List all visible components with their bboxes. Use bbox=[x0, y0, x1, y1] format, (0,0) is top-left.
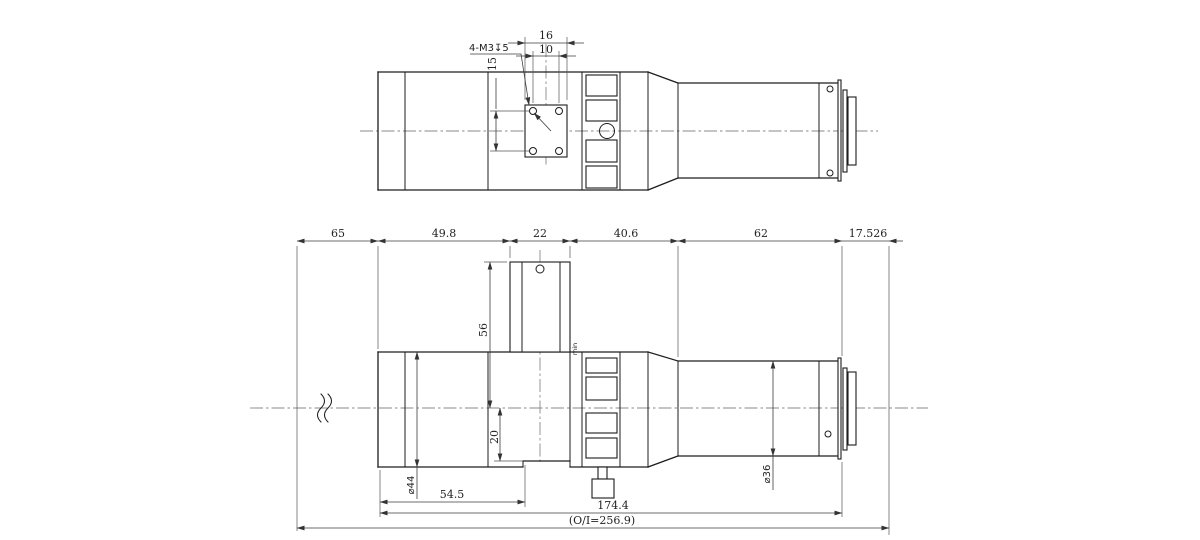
flange-screw-icon bbox=[827, 170, 833, 176]
dim-20: 20 bbox=[488, 408, 523, 461]
dim-174-4-label: 174.4 bbox=[597, 499, 629, 512]
dia-44-label: ⌀44 bbox=[406, 476, 417, 495]
dim-54-5: 54.5 bbox=[380, 465, 525, 517]
dim-16-label: 16 bbox=[539, 29, 553, 42]
dim-oi-distance: (O/I=256.9) bbox=[297, 514, 889, 528]
ring-marking-label: min bbox=[571, 343, 579, 355]
drawing-sheet: 16 10 15 4-M3↧5 bbox=[0, 0, 1200, 540]
technical-drawing: 16 10 15 4-M3↧5 bbox=[0, 0, 1200, 540]
oi-distance-label: (O/I=256.9) bbox=[569, 514, 635, 527]
dim-17-526-label: 17.526 bbox=[849, 227, 888, 240]
dim-22-label: 22 bbox=[533, 227, 547, 240]
dim-dia36: ⌀36 bbox=[762, 361, 773, 490]
dim-65-label: 65 bbox=[331, 227, 345, 240]
top-view-centerlines bbox=[360, 44, 878, 167]
front-view: min bbox=[250, 227, 928, 535]
dim-54-5-label: 54.5 bbox=[440, 488, 465, 501]
dim-49-8-label: 49.8 bbox=[432, 227, 457, 240]
dim-56-label: 56 bbox=[477, 323, 490, 337]
top-view-mount-flange bbox=[827, 80, 856, 181]
dim-40-6-label: 40.6 bbox=[614, 227, 639, 240]
lock-screw bbox=[592, 467, 614, 498]
top-view: 16 10 15 4-M3↧5 bbox=[360, 29, 878, 190]
flange-screw-icon bbox=[825, 431, 831, 437]
dia-36-label: ⌀36 bbox=[762, 465, 773, 484]
flange-screw-icon bbox=[827, 86, 833, 92]
thread-callout-label: 4-M3↧5 bbox=[469, 43, 509, 54]
mounting-plate bbox=[525, 105, 567, 157]
top-view-knurl-ring bbox=[586, 75, 617, 188]
dim-62-label: 62 bbox=[754, 227, 768, 240]
front-view-mount-flange bbox=[825, 358, 856, 459]
dim-15: 15 bbox=[486, 57, 529, 151]
dim-56: 56 bbox=[477, 262, 507, 408]
dim-dia44: ⌀44 bbox=[406, 352, 417, 499]
dim-15-label: 15 bbox=[486, 57, 499, 71]
dim-10-label: 10 bbox=[539, 43, 553, 56]
dim-20-label: 20 bbox=[488, 430, 501, 444]
